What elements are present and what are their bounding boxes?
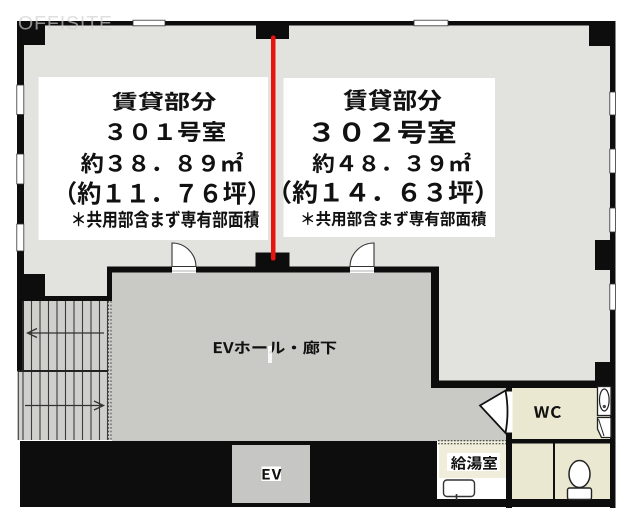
svg-text:OFFISITE: OFFISITE (18, 13, 113, 35)
